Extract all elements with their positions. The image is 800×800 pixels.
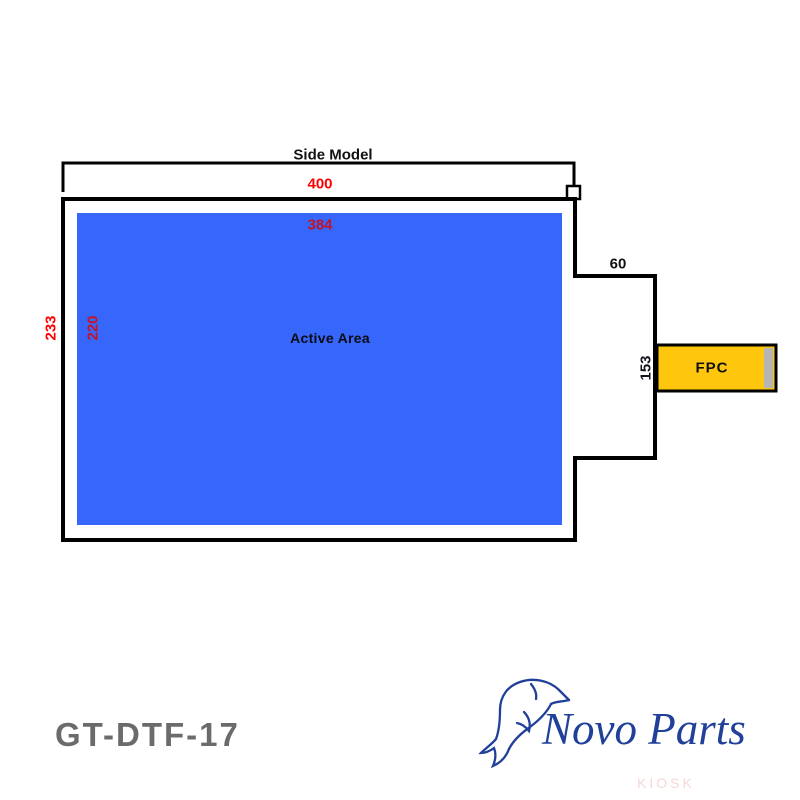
- outer-width-dimension: 400: [307, 176, 332, 193]
- tab-height-dimension: 153: [638, 355, 655, 380]
- fpc-label: FPC: [696, 360, 729, 377]
- active-width-dimension: 384: [307, 217, 332, 234]
- active-height-dimension: 220: [85, 315, 102, 340]
- tab-offset-dimension: 60: [610, 256, 627, 273]
- diagram-linework: [0, 0, 800, 800]
- panel-outline: [63, 199, 655, 540]
- active-area-label: Active Area: [290, 330, 370, 346]
- outer-height-dimension: 233: [43, 315, 60, 340]
- part-number: GT-DTF-17: [55, 716, 240, 754]
- diagram-title: Side Model: [293, 147, 372, 164]
- fpc-end-strip: [764, 348, 773, 388]
- watermark-text: KIOSK: [637, 775, 695, 791]
- logo-wordmark: Novo Parts: [542, 703, 746, 755]
- dimension-diagram: Side Model 400 384 233 220 Active Area 6…: [0, 0, 800, 800]
